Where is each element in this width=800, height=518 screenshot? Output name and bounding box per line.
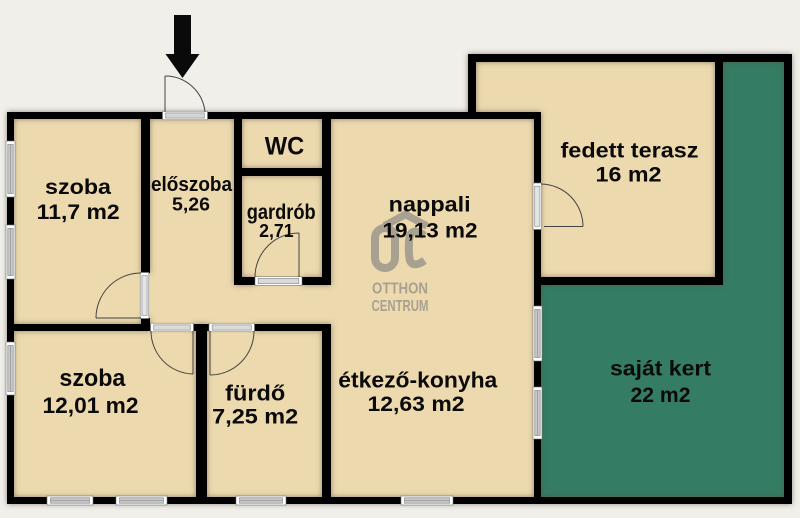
svg-text:nappali: nappali (389, 194, 471, 217)
svg-text:CENTRUM: CENTRUM (372, 298, 429, 315)
svg-text:szoba: szoba (59, 365, 125, 392)
svg-text:12,01 m2: 12,01 m2 (43, 393, 139, 418)
svg-text:11,7 m2: 11,7 m2 (37, 200, 120, 224)
svg-text:fürdő: fürdő (225, 381, 285, 406)
svg-text:22 m2: 22 m2 (631, 384, 691, 407)
svg-text:OTTHON: OTTHON (372, 281, 428, 298)
svg-text:saját kert: saját kert (610, 358, 711, 381)
svg-text:5,26: 5,26 (172, 194, 210, 215)
svg-text:2,71: 2,71 (259, 220, 294, 241)
svg-text:7,25 m2: 7,25 m2 (212, 406, 298, 429)
svg-text:19,13 m2: 19,13 m2 (383, 219, 478, 243)
svg-text:WC: WC (265, 133, 305, 161)
svg-text:étkező-konyha: étkező-konyha (338, 368, 497, 393)
svg-text:fedett terasz: fedett terasz (561, 140, 699, 163)
svg-text:12,63 m2: 12,63 m2 (368, 393, 465, 416)
svg-text:16 m2: 16 m2 (596, 163, 662, 187)
svg-text:szoba: szoba (45, 176, 111, 199)
